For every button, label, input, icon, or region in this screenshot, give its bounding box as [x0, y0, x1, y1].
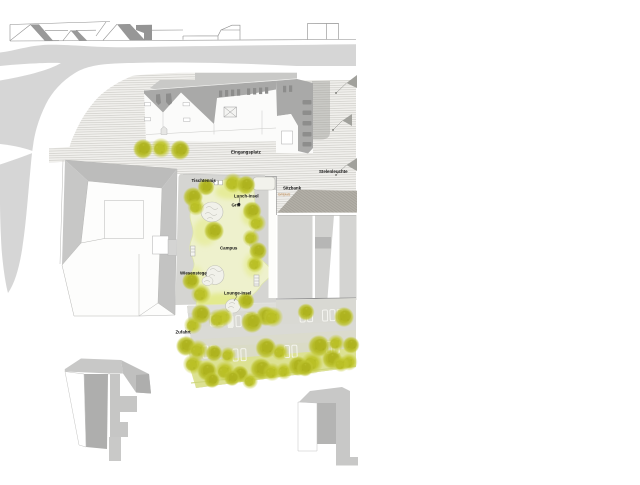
svg-text:Stelenleuchte: Stelenleuchte [319, 169, 348, 174]
svg-text:Sitzbank: Sitzbank [283, 186, 302, 191]
svg-text:Lunch-Insel: Lunch-Insel [234, 194, 259, 199]
svg-text:Wiesenstege: Wiesenstege [180, 271, 207, 276]
svg-text:Grill: Grill [232, 203, 241, 208]
svg-text:Eingangsplatz: Eingangsplatz [231, 150, 262, 155]
svg-text:Tischtennis: Tischtennis [192, 178, 217, 183]
svg-text:Lounge-Insel: Lounge-Insel [224, 291, 251, 296]
svg-text:Grillplatz: Grillplatz [278, 193, 291, 197]
svg-text:Campus: Campus [220, 246, 238, 251]
svg-text:Zufahrt: Zufahrt [176, 330, 192, 335]
